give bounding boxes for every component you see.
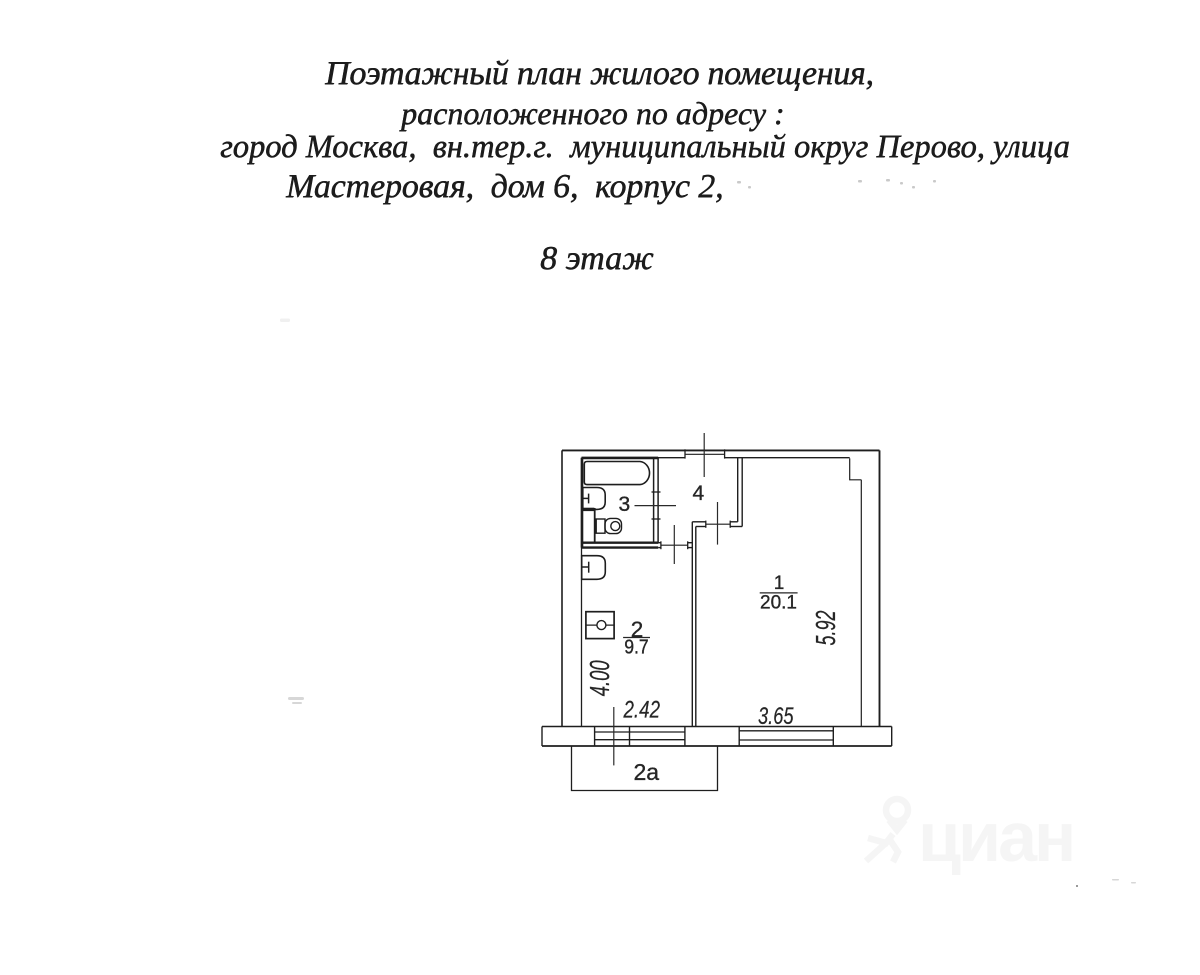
svg-text:9.7: 9.7 bbox=[624, 635, 649, 658]
svg-text:20.1: 20.1 bbox=[760, 593, 797, 614]
svg-text:2а: 2а bbox=[634, 759, 660, 785]
svg-text:2.42: 2.42 bbox=[623, 697, 660, 724]
svg-text:1: 1 bbox=[774, 573, 785, 594]
svg-text:циан: циан bbox=[918, 798, 1073, 876]
svg-text:4: 4 bbox=[693, 482, 705, 505]
svg-text:3.65: 3.65 bbox=[758, 703, 794, 730]
svg-text:3: 3 bbox=[619, 493, 631, 516]
svg-text:5.92: 5.92 bbox=[810, 610, 841, 645]
svg-text:4.00: 4.00 bbox=[584, 660, 615, 696]
